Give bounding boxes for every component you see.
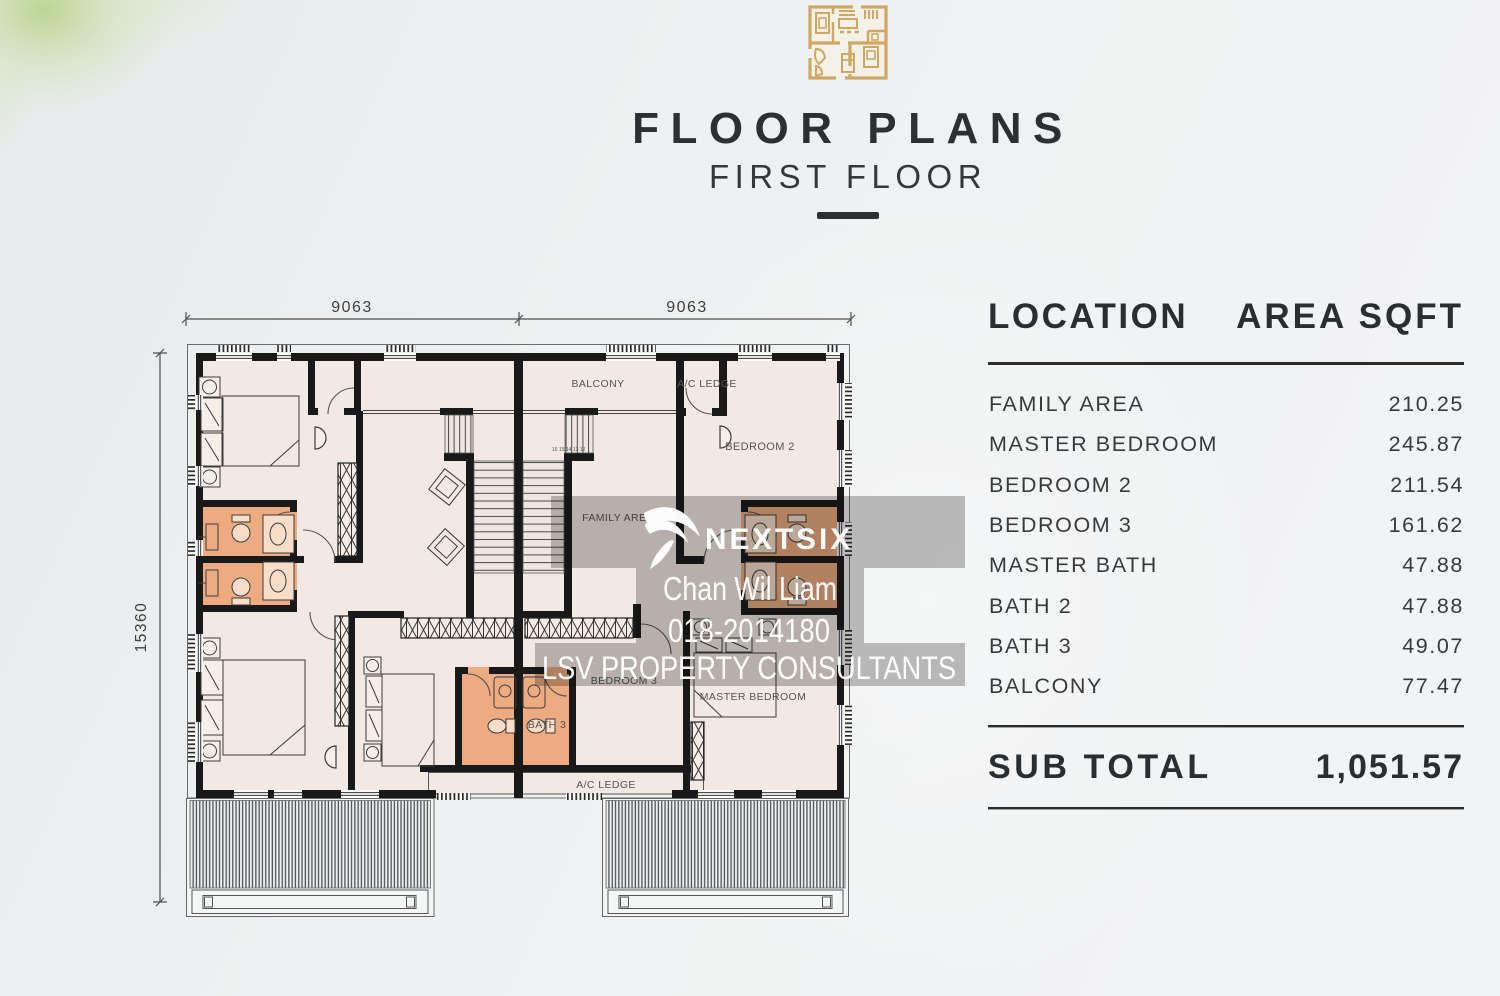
svg-text:A/C LEDGE: A/C LEDGE xyxy=(576,779,636,791)
svg-text:MASTER BEDROOM: MASTER BEDROOM xyxy=(989,432,1218,456)
svg-text:A/C LEDGE: A/C LEDGE xyxy=(677,378,737,390)
svg-text:LOCATION: LOCATION xyxy=(988,297,1188,336)
svg-text:FAMILY AREA: FAMILY AREA xyxy=(989,392,1144,416)
svg-text:15360: 15360 xyxy=(133,602,150,653)
svg-text:BATH 2: BATH 2 xyxy=(989,594,1072,618)
svg-text:BATH 3: BATH 3 xyxy=(528,719,566,731)
svg-text:1,051.57: 1,051.57 xyxy=(1316,748,1464,786)
svg-text:9063: 9063 xyxy=(331,299,373,316)
svg-text:LSV PROPERTY CONSULTANTS: LSV PROPERTY CONSULTANTS xyxy=(542,650,956,686)
svg-text:161.62: 161.62 xyxy=(1389,513,1464,537)
svg-text:245.87: 245.87 xyxy=(1389,432,1464,456)
svg-text:9063: 9063 xyxy=(666,299,708,316)
svg-text:210.25: 210.25 xyxy=(1389,392,1464,416)
svg-text:BATH 3: BATH 3 xyxy=(989,634,1072,658)
svg-text:MASTER BATH: MASTER BATH xyxy=(989,553,1158,577)
svg-text:AREA SQFT: AREA SQFT xyxy=(1236,297,1464,336)
svg-text:47.88: 47.88 xyxy=(1402,594,1464,618)
svg-text:BALCONY: BALCONY xyxy=(989,674,1103,698)
svg-text:77.47: 77.47 xyxy=(1402,674,1464,698)
svg-text:BEDROOM 2: BEDROOM 2 xyxy=(989,473,1132,497)
svg-text:BEDROOM 2: BEDROOM 2 xyxy=(725,441,795,453)
svg-text:47.88: 47.88 xyxy=(1402,553,1464,577)
svg-text:49.07: 49.07 xyxy=(1402,634,1464,658)
svg-text:211.54: 211.54 xyxy=(1390,473,1464,497)
svg-text:16 15 14 13 12: 16 15 14 13 12 xyxy=(552,447,586,453)
svg-text:BEDROOM 3: BEDROOM 3 xyxy=(989,513,1132,537)
svg-text:FIRST FLOOR: FIRST FLOOR xyxy=(709,158,987,195)
svg-text:FLOOR PLANS: FLOOR PLANS xyxy=(632,104,1074,153)
svg-text:SUB TOTAL: SUB TOTAL xyxy=(988,748,1212,786)
svg-text:BALCONY: BALCONY xyxy=(572,378,625,390)
svg-text:Chan Wil Liam: Chan Wil Liam xyxy=(663,570,837,607)
svg-text:MASTER BEDROOM: MASTER BEDROOM xyxy=(700,691,807,703)
svg-text:018-2014180: 018-2014180 xyxy=(668,612,830,649)
svg-text:NEXTSIX: NEXTSIX xyxy=(705,523,853,556)
